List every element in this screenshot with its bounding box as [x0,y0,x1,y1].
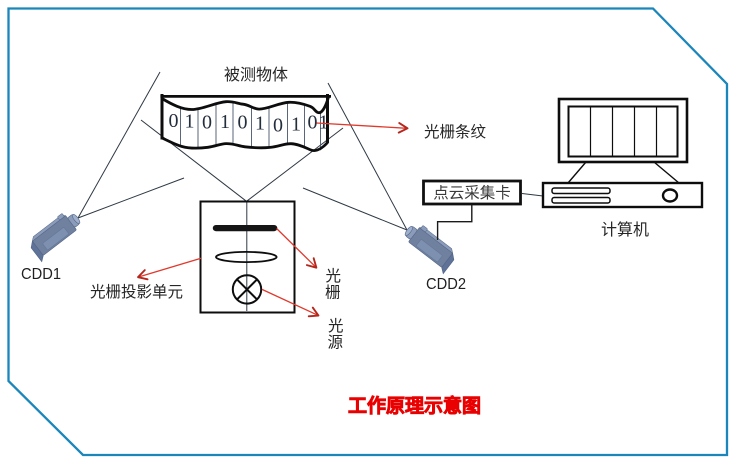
svg-text:栅: 栅 [325,284,341,302]
svg-text:1: 1 [255,113,265,135]
svg-text:被测物体: 被测物体 [224,66,288,84]
svg-text:1: 1 [185,111,195,133]
svg-text:光栅投影单元: 光栅投影单元 [90,283,183,301]
svg-text:CDD2: CDD2 [426,276,466,293]
svg-text:点云采集卡: 点云采集卡 [433,184,511,202]
svg-text:0: 0 [169,110,179,132]
svg-text:1: 1 [220,111,230,133]
svg-text:计算机: 计算机 [601,220,649,239]
svg-text:光栅条纹: 光栅条纹 [424,123,487,141]
svg-text:源: 源 [328,334,344,352]
svg-text:工作原理示意图: 工作原理示意图 [348,394,481,417]
svg-text:CDD1: CDD1 [21,266,61,283]
svg-text:光: 光 [326,267,342,285]
svg-text:0: 0 [238,112,248,134]
svg-text:1: 1 [291,114,301,136]
svg-text:光: 光 [328,317,344,335]
svg-text:0: 0 [273,115,283,137]
svg-text:0: 0 [202,112,212,134]
svg-text:0: 0 [308,112,318,134]
